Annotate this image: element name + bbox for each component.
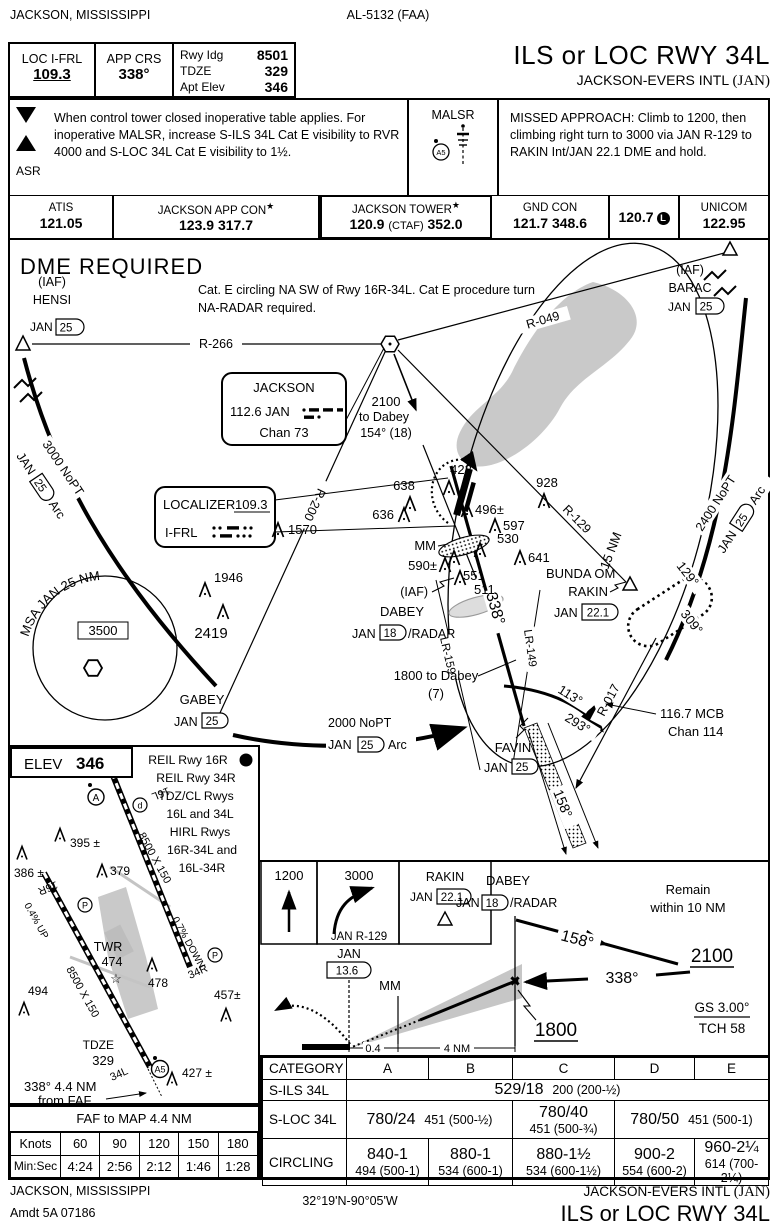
svg-text:4 NM: 4 NM (444, 1043, 470, 1055)
app-con-cell: JACKSON APP CON★ 123.9 317.7 (114, 196, 320, 238)
svg-text:511: 511 (474, 582, 495, 597)
route-break-icon (704, 270, 726, 280)
t113-label: 113° (554, 681, 594, 714)
svg-text:18: 18 (384, 628, 397, 640)
apt-elev-value: 346 (265, 79, 288, 95)
svg-text:(IAF): (IAF) (676, 263, 704, 277)
tower-star-icon: ☆ (110, 971, 122, 986)
timing-cell: 60 (61, 1133, 100, 1156)
cat-d-header: D (615, 1058, 695, 1080)
title-block: ILS or LOC RWY 34L JACKSON-EVERS INTL (J… (513, 40, 770, 90)
cat-a-header: A (347, 1058, 429, 1080)
profile-158-label: 158° (555, 925, 602, 954)
circling-a: 840-1494 (500-1) (347, 1139, 429, 1186)
malsr-a5-badge: A5 (152, 1056, 169, 1078)
glideslope-beam (350, 964, 522, 1048)
profile-missed-curl (276, 1006, 350, 1044)
missed-via: JAN R-129 (331, 931, 387, 943)
svg-text:BARAC: BARAC (668, 281, 711, 295)
approach-light-badge-16l: A (88, 783, 104, 805)
svg-text:379: 379 (110, 864, 130, 878)
airport-name: JACKSON-EVERS INTL (577, 72, 729, 88)
gnd-con-label: GND CON (492, 202, 608, 215)
hold-nav: JAN (410, 890, 433, 904)
svg-text:P: P (212, 951, 218, 961)
remain-note-1: Remain (666, 882, 711, 897)
timing-cell: 1:28 (218, 1155, 257, 1178)
footer-city: JACKSON, MISSISSIPPI (10, 1184, 150, 1198)
timing-table: Knots 60 90 120 150 180 Min:Sec 4:24 2:5… (10, 1132, 258, 1178)
cat-e-header: E (695, 1058, 769, 1080)
svg-text:636: 636 (372, 507, 394, 522)
rakin-holding-pattern (621, 570, 720, 654)
circled-p-badge-2: P (208, 948, 222, 962)
arc-south-alt-label: 2000 NoPT (326, 716, 392, 730)
app-crs-value: 338° (96, 66, 172, 83)
tower-freq: 120.9 (CTAF) 352.0 (322, 216, 490, 235)
timing-table-box: FAF to MAP 4.4 NM Knots 60 90 120 150 18… (8, 1105, 260, 1180)
sketch-tdze-label: TDZE (83, 1038, 114, 1052)
mm-label: MM (414, 538, 436, 553)
radial-017-label: R-017 (590, 674, 627, 726)
svg-text:HIRL Rwys: HIRL Rwys (170, 825, 231, 839)
svg-text:34L: 34L (108, 1065, 130, 1083)
vor-chan: Chan 73 (259, 425, 308, 440)
svg-text:REIL Rwy 34R: REIL Rwy 34R (156, 771, 236, 785)
svg-text:25: 25 (516, 762, 529, 774)
svg-text:JAN: JAN (484, 761, 508, 775)
faf-course-note: 338° 4.4 NM (24, 1079, 96, 1094)
malsr-icon: A5 (427, 122, 479, 170)
svg-text:2100: 2100 (372, 394, 401, 409)
svg-text:DABEY: DABEY (380, 604, 424, 619)
svg-text:25: 25 (361, 740, 374, 752)
vor-freq: 112.6 JAN (230, 404, 290, 419)
apt-elev-row: Apt Elev346 (180, 79, 288, 95)
lake-shape (457, 282, 637, 467)
svg-text:15 NM: 15 NM (597, 530, 625, 571)
fix-dabey: (IAF) DABEY JAN 18 /RADAR (352, 578, 455, 641)
missed-turn-alt: 3000 (345, 868, 374, 883)
elev-label: ELEV (24, 756, 62, 773)
footer-procedure: ILS or LOC RWY 34L (560, 1201, 770, 1227)
inbound-338-line-1 (656, 972, 690, 975)
faf-altitude: 1800 (535, 1020, 577, 1041)
svg-text:18: 18 (486, 898, 499, 910)
sketch-tdze-value: 329 (92, 1053, 114, 1068)
tdze-label: TDZE (180, 63, 211, 79)
tdze-value: 329 (265, 63, 288, 79)
circling-note-1: Cat. E circling NA SW of Rwy 16R-34L. Ca… (198, 283, 535, 297)
lighting-notes: REIL Rwy 16R L REIL Rwy 34R TDZ/CL Rwys … (148, 753, 252, 875)
notes-strip: T A ASR When control tower closed inoper… (8, 98, 770, 195)
timing-cell: 150 (179, 1133, 218, 1156)
rwy-data-box: Rwy Idg8501 TDZE329 Apt Elev346 (172, 42, 296, 98)
svg-text:d: d (137, 801, 142, 811)
rwy-ldg-row: Rwy Idg8501 (180, 47, 288, 63)
tch-value: TCH 58 (699, 1021, 746, 1036)
radial-129-label: R-129 (553, 496, 600, 543)
localizer-box: LOCALIZER 109.3 I-FRL (155, 487, 275, 547)
svg-text:494: 494 (28, 984, 48, 998)
hold-fix-triangle (438, 912, 452, 925)
svg-text:A: A (93, 793, 100, 804)
svg-text:to Dabey: to Dabey (359, 410, 410, 424)
frequency-strip: ATIS 121.05 JACKSON APP CON★ 123.9 317.7… (8, 195, 770, 240)
svg-text:(7): (7) (428, 686, 444, 701)
minimums-box: CATEGORY A B C D E S-ILS 34L 529/18 200 … (260, 1055, 770, 1180)
rwy-ldg-value: 8501 (257, 47, 288, 63)
hold-fix-name: RAKIN (426, 870, 464, 884)
profile-jan-dme: 13.6 (336, 966, 358, 978)
barac-triangle (723, 242, 737, 255)
svg-text:FAVIN: FAVIN (495, 740, 532, 755)
equipment-icons: T A ASR (16, 106, 46, 178)
svg-text:JAN: JAN (30, 320, 53, 334)
malsr-cell: MALSR A5 (407, 100, 499, 195)
svg-text:158°: 158° (559, 927, 595, 952)
footer-coords: 32°19'N-90°05'W (250, 1194, 450, 1208)
radial-017-line (576, 638, 656, 788)
rwy-ldg-label: Rwy Idg (180, 47, 223, 63)
svg-text:RAKIN: RAKIN (568, 584, 608, 599)
svg-text:JAN: JAN (554, 606, 578, 620)
clnc-del-cell: 120.7L (610, 196, 680, 238)
clnc-del-freq: 120.7L (610, 209, 678, 226)
svg-text:REIL Rwy 16R: REIL Rwy 16R (148, 753, 228, 767)
footer-title-block: JACKSON-EVERS INTL (JAN) ILS or LOC RWY … (560, 1184, 770, 1227)
svg-text:T: T (23, 108, 29, 118)
fix-rakin: RAKIN JAN 22.1 (554, 577, 637, 620)
svg-text:JAN: JAN (328, 738, 352, 752)
bunda-om-label: BUNDA OM (546, 566, 615, 581)
svg-text:1800 to Dabey: 1800 to Dabey (394, 668, 479, 683)
localizer-freq: 109.3 (235, 497, 268, 512)
star-icon: ★ (266, 201, 274, 211)
tower-symbol: TWR 474 ☆ (94, 940, 123, 986)
loc-box: LOC I-FRL 109.3 (8, 42, 96, 98)
slope-up-label: 0.4% UP (21, 901, 50, 941)
outbound-158-line-2 (605, 944, 678, 964)
inbound-338-line-2 (526, 979, 588, 982)
svg-text:22.1: 22.1 (587, 608, 609, 620)
svg-text:496±: 496± (475, 502, 504, 517)
svg-text:25: 25 (700, 302, 713, 314)
svg-text:0.4: 0.4 (365, 1043, 380, 1055)
s-loc-ab-minimums: 780/24 451 (500-½) (347, 1101, 513, 1139)
svg-text:L: L (243, 756, 249, 766)
feeder-label: 2100 to Dabey 154° (18) (359, 394, 412, 440)
apt-elev-label: Apt Elev (180, 79, 225, 95)
svg-text:Arc: Arc (388, 738, 407, 752)
profile-338-label: 338° (605, 970, 638, 987)
faf-note-arrow (106, 1093, 146, 1099)
timing-cell: 4:24 (61, 1155, 100, 1178)
profile-jan-label: JAN (337, 947, 361, 961)
distance-04-label: 0.4 (363, 1042, 384, 1055)
leader-lightning-icon (432, 578, 454, 592)
svg-text:Chan 114: Chan 114 (668, 724, 723, 739)
distance-4nm-label: 4 NM (440, 1042, 474, 1055)
svg-text:JAN: JAN (174, 715, 198, 729)
star-icon: ★ (452, 200, 460, 210)
fix-gabey: GABEY JAN 25 (174, 692, 228, 729)
svg-text:25: 25 (60, 323, 73, 335)
svg-text:/RADAR: /RADAR (408, 627, 455, 641)
approach-plate: JACKSON, MISSISSIPPI AL-5132 (FAA) ILS o… (0, 0, 778, 1232)
pt-altitude: 2100 (691, 946, 733, 967)
svg-text:A5: A5 (154, 1065, 165, 1075)
jan-vor-box: JACKSON 112.6 JAN Chan 73 (222, 373, 346, 445)
timing-cell: 180 (218, 1133, 257, 1156)
svg-text:R-266: R-266 (199, 337, 233, 351)
elev-value: 346 (76, 754, 104, 773)
svg-text:0.4% UP: 0.4% UP (21, 901, 50, 941)
header-city: JACKSON, MISSISSIPPI (10, 8, 150, 22)
localizer-ident: I-FRL (165, 525, 198, 540)
circling-b: 880-1534 (600-1) (429, 1139, 513, 1186)
timing-cell: Knots (11, 1133, 61, 1156)
loc-label: LOC I-FRL (10, 52, 94, 66)
timing-cell: 120 (139, 1133, 178, 1156)
unicom-cell: UNICOM 122.95 (680, 196, 768, 238)
svg-text:2419: 2419 (194, 625, 227, 642)
airport-sketch-box: ELEV 346 REIL Rwy 16R L REIL Rwy 34R TDZ… (8, 745, 260, 1105)
svg-text:641: 641 (528, 550, 550, 565)
faf-alt-lightning (518, 990, 536, 1020)
takeoff-minimums-icon: T (16, 106, 37, 125)
gs-angle: GS 3.00° (695, 1000, 750, 1015)
arc-south-id-label: JAN 25 Arc (326, 736, 416, 753)
rakin-triangle (623, 577, 637, 590)
minimums-table: CATEGORY A B C D E S-ILS 34L 529/18 200 … (262, 1057, 769, 1186)
profile-view: 1200 3000 JAN R-129 RAKIN JAN 22.1 DABEY… (260, 860, 770, 1056)
svg-text:JAN: JAN (456, 896, 480, 910)
rwy-34l-label: 34L (108, 1065, 130, 1083)
timing-cell: 2:56 (100, 1155, 139, 1178)
chart-id: AL-5132 (FAA) (288, 8, 488, 22)
svg-text:16R-34L and: 16R-34L and (167, 843, 237, 857)
profile-runway-bar (302, 1044, 350, 1050)
unicom-freq: 122.95 (680, 215, 768, 232)
route-break-icon (20, 392, 42, 402)
s-loc-de-minimums: 780/50 451 (500-1) (615, 1101, 769, 1139)
svg-text:474: 474 (102, 955, 123, 969)
vor-name: JACKSON (253, 380, 314, 395)
tower-cell: JACKSON TOWER★ 120.9 (CTAF) 352.0 (320, 195, 492, 239)
svg-text:R-200: R-200 (301, 486, 328, 523)
svg-text:/RADAR: /RADAR (510, 896, 557, 910)
svg-text:25: 25 (206, 716, 219, 728)
footer-airport-code: (JAN) (734, 1184, 770, 1200)
svg-text:(IAF): (IAF) (400, 585, 428, 599)
missed-climb-alt: 1200 (275, 868, 304, 883)
svg-text:457±: 457± (214, 988, 241, 1002)
circling-label: CIRCLING (263, 1139, 347, 1186)
airport-code: (JAN) (733, 73, 771, 89)
svg-text:HENSI: HENSI (33, 293, 71, 307)
tower-label: JACKSON TOWER★ (322, 199, 490, 217)
app-crs-box: APP CRS 338° (94, 42, 174, 98)
atis-freq: 121.05 (10, 215, 112, 232)
hensi-triangle (16, 336, 30, 350)
app-con-label: JACKSON APP CON★ (114, 200, 318, 218)
profile-dabey-label: DABEY JAN 18 /RADAR (456, 873, 557, 910)
msa-vor-icon (84, 660, 102, 676)
fix-barac: (IAF) BARAC JAN 25 (668, 242, 737, 314)
airport-title: JACKSON-EVERS INTL (JAN) (513, 72, 770, 90)
category-header: CATEGORY (263, 1058, 347, 1080)
loc-freq: 109.3 (10, 66, 94, 83)
svg-text:1946: 1946 (214, 570, 243, 585)
footer-amdt: Amdt 5A 07186 (10, 1206, 95, 1220)
svg-text:530: 530 (497, 531, 519, 546)
remain-note-2: within 10 NM (649, 900, 725, 915)
tdze-row: TDZE329 (180, 63, 288, 79)
timing-cell: 2:12 (139, 1155, 178, 1178)
svg-text:1570: 1570 (288, 522, 317, 537)
atis-cell: ATIS 121.05 (10, 196, 114, 238)
profile-mm-label: MM (379, 978, 401, 993)
circling-d: 900-2554 (600-2) (615, 1139, 695, 1186)
svg-text:16L-34R: 16L-34R (179, 861, 226, 875)
svg-text:427 ±: 427 ± (182, 1066, 212, 1080)
msa-altitude: 3500 (89, 623, 118, 638)
svg-text:386 ±: 386 ± (14, 866, 44, 880)
circling-note-2: NA-RADAR required. (198, 301, 316, 315)
route-break-icon (714, 286, 736, 296)
localizer-label: LOCALIZER (163, 497, 235, 512)
svg-text:928: 928 (536, 475, 558, 490)
svg-text:TWR: TWR (94, 940, 122, 954)
footer-airport: JACKSON-EVERS INTL (JAN) (560, 1184, 770, 1201)
app-crs-label: APP CRS (96, 52, 172, 66)
svg-text:395 ±: 395 ± (70, 836, 100, 850)
malsr-label: MALSR (409, 108, 497, 122)
timing-cell: 1:46 (179, 1155, 218, 1178)
s-loc-label: S-LOC 34L (263, 1101, 347, 1139)
fix-hensi: (IAF) HENSI JAN 25 (14, 275, 84, 402)
app-con-freq: 123.9 317.7 (114, 217, 318, 234)
radial-266-label: R-266 (190, 336, 242, 351)
svg-text:GABEY: GABEY (180, 692, 225, 707)
alternate-minimums-icon: A (16, 134, 37, 153)
climbing-turn-icon (334, 888, 372, 934)
svg-text:A: A (23, 141, 30, 151)
s-ils-label: S-ILS 34L (263, 1080, 347, 1101)
svg-text:16L and 34L: 16L and 34L (166, 807, 234, 821)
s-ils-minimums: 529/18 200 (200-½) (347, 1080, 769, 1101)
faf-cross-icon: ✖ (509, 973, 521, 989)
gnd-con-cell: GND CON 121.7 348.6 (492, 196, 610, 238)
timing-title: FAF to MAP 4.4 NM (10, 1107, 258, 1132)
svg-text:P: P (82, 901, 88, 911)
svg-text:154° (18): 154° (18) (360, 426, 412, 440)
unicom-label: UNICOM (680, 202, 768, 215)
svg-text:116.7 MCB: 116.7 MCB (660, 706, 724, 721)
circling-c: 880-1½534 (600-1½) (513, 1139, 615, 1186)
timing-cell: Min:Sec (11, 1155, 61, 1178)
msa-circle: MSA JAN 25 NM 3500 (17, 568, 185, 720)
circled-p-badge-1: P (78, 898, 92, 912)
cat-b-header: B (429, 1058, 513, 1080)
timing-cell: 90 (100, 1133, 139, 1156)
circled-d-badge: d (133, 798, 147, 812)
svg-text:(IAF): (IAF) (38, 275, 66, 289)
loc-box-leader-1 (275, 478, 448, 500)
svg-text:478: 478 (148, 976, 168, 990)
gnd-con-freq: 121.7 348.6 (492, 215, 608, 232)
svg-text:551: 551 (463, 568, 485, 583)
atis-label: ATIS (10, 202, 112, 215)
airport-sketch: ELEV 346 REIL Rwy 16R L REIL Rwy 34R TDZ… (10, 747, 258, 1103)
svg-text:JAN: JAN (668, 300, 691, 314)
svg-text:638: 638 (393, 478, 415, 493)
circled-l-icon: L (657, 212, 670, 225)
lr149-label: LR-149 (521, 626, 541, 672)
missed-approach-text: MISSED APPROACH: Climb to 1200, then cli… (510, 110, 772, 161)
svg-text:JAN: JAN (352, 627, 376, 641)
s-loc-c-minimums: 780/40451 (500-¾) (513, 1101, 615, 1139)
svg-text:2000 NoPT: 2000 NoPT (328, 716, 392, 730)
svg-text:422: 422 (450, 462, 472, 477)
cat-c-header: C (513, 1058, 615, 1080)
mcb-vor-label: 116.7 MCB Chan 114 (606, 704, 724, 739)
procedure-title: ILS or LOC RWY 34L (513, 40, 770, 71)
inop-notes: When control tower closed inoperative ta… (54, 110, 402, 161)
asr-label: ASR (16, 164, 46, 178)
svg-text:DABEY: DABEY (486, 873, 530, 888)
circling-e: 960-2¼614 (700-2¼) (695, 1139, 769, 1186)
svg-text:A5: A5 (436, 148, 445, 157)
svg-text:590±: 590± (408, 558, 437, 573)
faf-from-note: from FAF (38, 1093, 92, 1103)
